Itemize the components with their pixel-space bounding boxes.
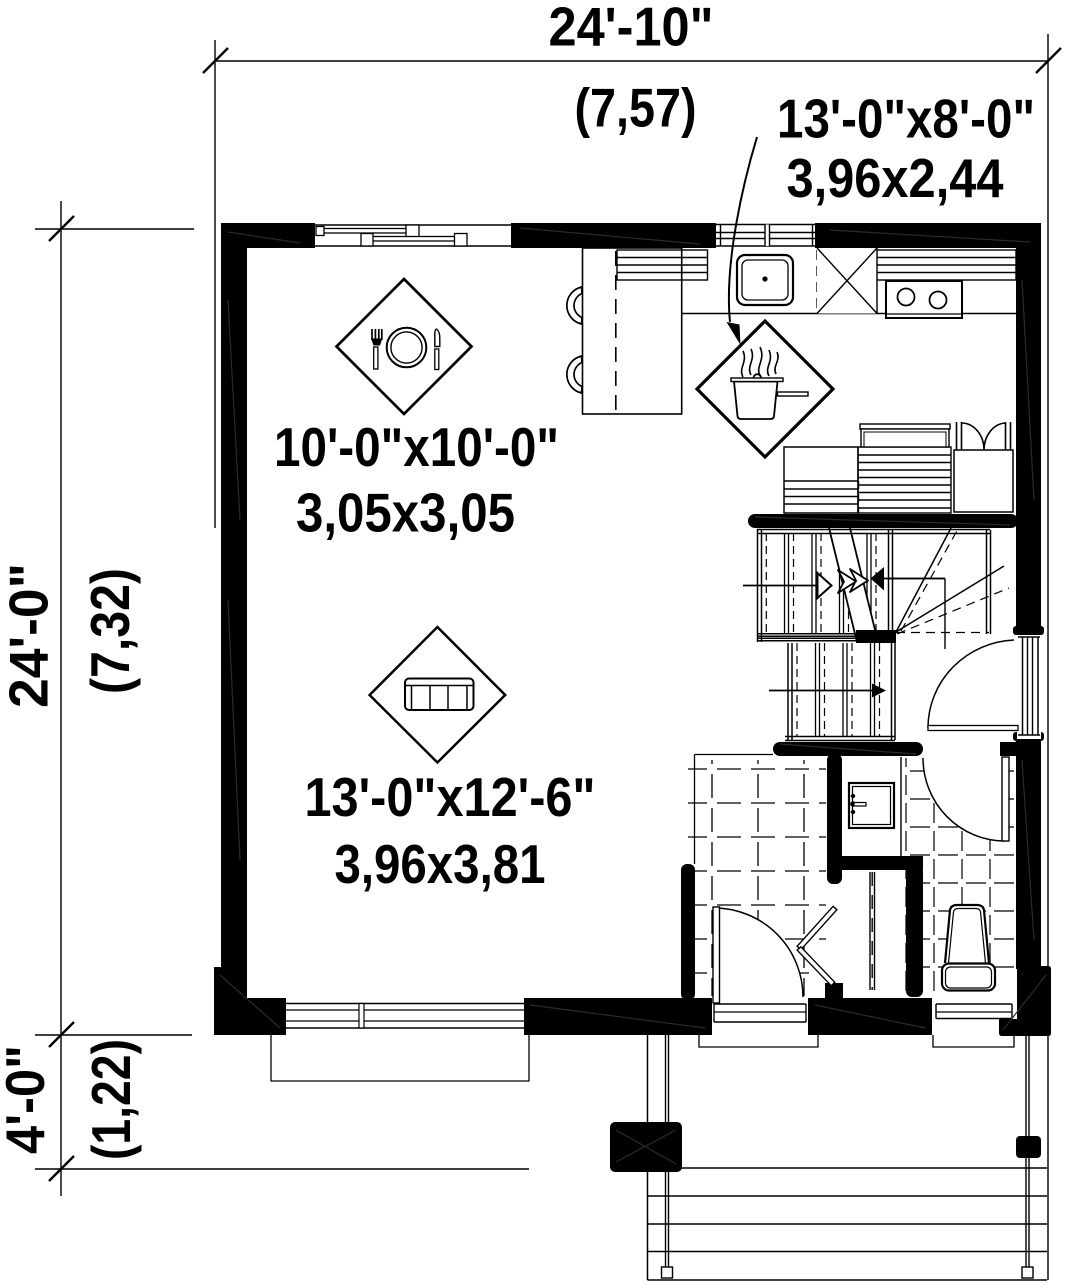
svg-text:24'-0": 24'-0" (0, 563, 60, 708)
svg-text:4'-0": 4'-0" (0, 1045, 56, 1154)
svg-text:10'-0"x10'-0": 10'-0"x10'-0" (274, 416, 559, 478)
svg-text:24'-10": 24'-10" (549, 0, 714, 58)
svg-text:(1,22): (1,22) (80, 1039, 142, 1160)
svg-text:3,96x2,44: 3,96x2,44 (787, 147, 1004, 209)
svg-text:(7,32): (7,32) (79, 568, 141, 694)
svg-text:13'-0"x8'-0": 13'-0"x8'-0" (777, 88, 1035, 150)
svg-text:13'-0"x12'-6": 13'-0"x12'-6" (305, 766, 596, 828)
svg-text:(7,57): (7,57) (575, 77, 697, 139)
svg-text:3,05x3,05: 3,05x3,05 (296, 482, 515, 544)
svg-text:3,96x3,81: 3,96x3,81 (335, 833, 546, 895)
